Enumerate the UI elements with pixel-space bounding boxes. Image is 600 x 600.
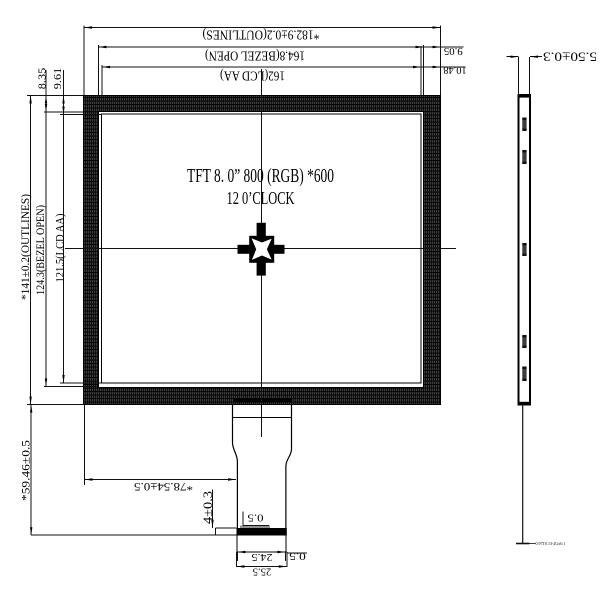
- svg-text:*182.9±0.2(OUTLINES): *182.9±0.2(OUTLINES): [202, 26, 319, 41]
- svg-text:164.8(BEZEL OPEN): 164.8(BEZEL OPEN): [205, 47, 305, 62]
- svg-text:25.5: 25.5: [253, 565, 272, 576]
- svg-text:121.5(LCD AA): 121.5(LCD AA): [54, 213, 66, 282]
- svg-text:124.3(BEZEL OPEN): 124.3(BEZEL OPEN): [35, 205, 47, 295]
- svg-text:9.61: 9.61: [53, 68, 64, 90]
- svg-text:4±0.3: 4±0.3: [201, 491, 215, 524]
- svg-text:24.5: 24.5: [252, 551, 273, 562]
- svg-text:0.5: 0.5: [289, 550, 306, 561]
- svg-text:0.97T0.13-2G±0.1: 0.97T0.13-2G±0.1: [536, 541, 566, 546]
- svg-text:0.5: 0.5: [247, 512, 264, 524]
- svg-text:TFT 8. 0” 800 (RGB) *600: TFT 8. 0” 800 (RGB) *600: [187, 165, 334, 187]
- svg-text:*141±0.2(OUTLINES): *141±0.2(OUTLINES): [18, 194, 32, 300]
- svg-text:*59.46±0.5: *59.46±0.5: [18, 440, 32, 501]
- svg-text:*78.54±0.5: *78.54±0.5: [134, 480, 193, 494]
- svg-text:12 0’CLOCK: 12 0’CLOCK: [227, 188, 295, 208]
- svg-text:162(LCD AA): 162(LCD AA): [220, 67, 285, 82]
- svg-text:10.48: 10.48: [443, 64, 467, 76]
- svg-text:5.50±0.3: 5.50±0.3: [543, 49, 597, 63]
- svg-text:8.35: 8.35: [37, 68, 48, 90]
- svg-text:9.05: 9.05: [443, 45, 462, 57]
